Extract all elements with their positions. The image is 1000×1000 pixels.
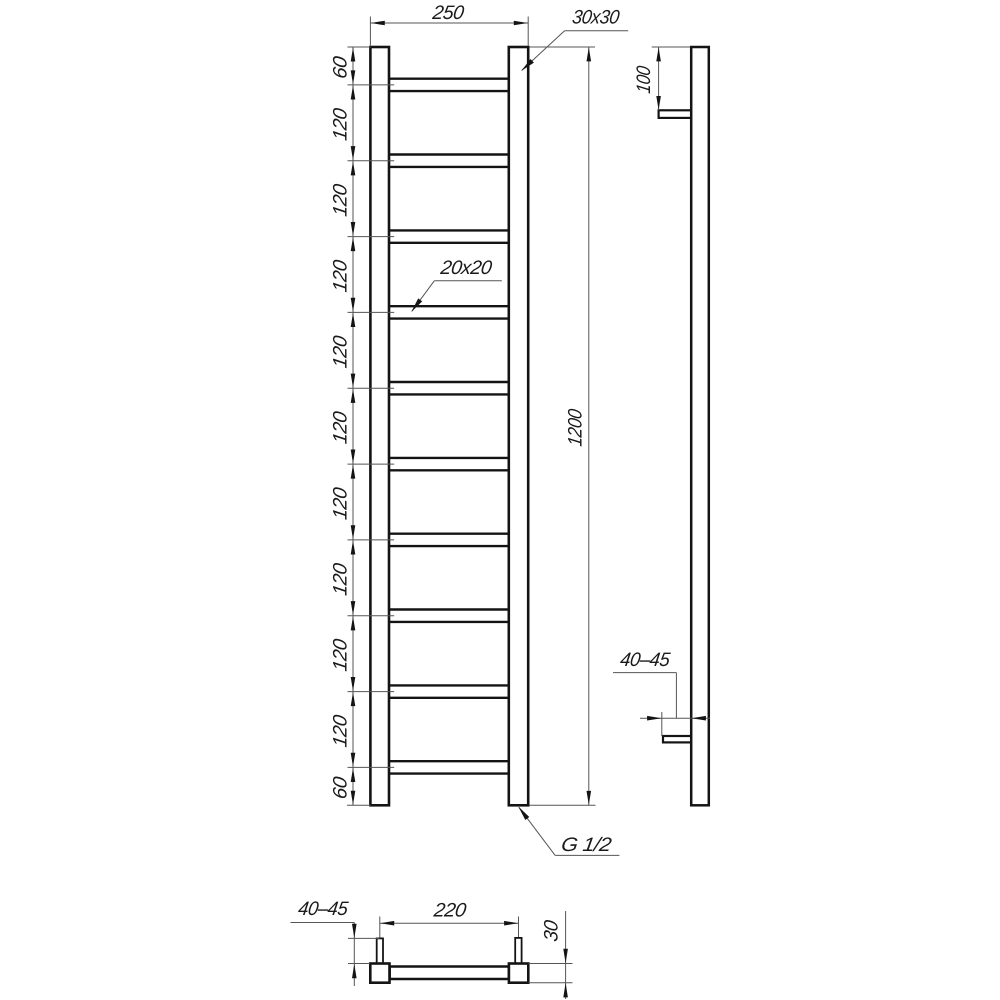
- svg-text:60: 60: [330, 775, 352, 800]
- svg-text:40–45: 40–45: [297, 898, 350, 920]
- svg-text:20x20: 20x20: [438, 257, 493, 279]
- svg-text:40–45: 40–45: [619, 649, 672, 671]
- svg-text:120: 120: [330, 334, 352, 369]
- svg-text:1200: 1200: [565, 408, 587, 448]
- svg-text:120: 120: [330, 410, 352, 445]
- svg-text:60: 60: [330, 55, 352, 80]
- svg-text:120: 120: [330, 183, 352, 218]
- svg-text:120: 120: [330, 562, 352, 597]
- svg-text:120: 120: [330, 638, 352, 673]
- svg-text:30x30: 30x30: [571, 7, 621, 29]
- svg-text:250: 250: [430, 2, 465, 24]
- svg-text:120: 120: [330, 107, 352, 142]
- svg-text:120: 120: [330, 486, 352, 521]
- svg-text:220: 220: [432, 900, 468, 922]
- svg-text:120: 120: [330, 713, 352, 748]
- svg-text:100: 100: [633, 65, 655, 95]
- svg-text:G 1/2: G 1/2: [560, 834, 613, 856]
- svg-text:120: 120: [330, 258, 352, 293]
- svg-text:30: 30: [541, 919, 563, 943]
